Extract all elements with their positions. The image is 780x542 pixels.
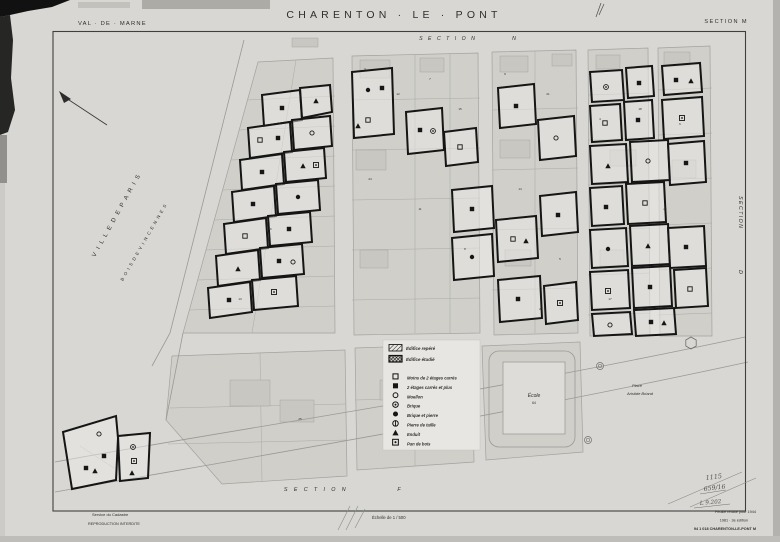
scan-smudge-top-2 — [78, 2, 130, 8]
symbol-square-filled — [556, 213, 560, 217]
symbol-square-filled — [470, 207, 474, 211]
surveyed-parcel — [634, 308, 676, 336]
parcel-number: 25 — [298, 417, 302, 421]
symbol-circle-filled — [470, 255, 474, 259]
building-shade — [360, 250, 388, 268]
symbol-square-dot-center — [273, 291, 275, 293]
symbol-circle-dot-center — [395, 404, 397, 406]
map-sheet: S E C T I O NNS E C T I O NDS E C T I O … — [0, 0, 780, 542]
surveyed-parcel — [662, 97, 704, 139]
surveyed-parcel — [496, 216, 538, 262]
legend: Édifice repéré Édifice étudié Moins de 2… — [383, 340, 480, 450]
symbol-square-filled — [516, 297, 520, 301]
place-label: Place — [632, 383, 643, 388]
scanned-cadastral-map-photo: S E C T I O NNS E C T I O NDS E C T I O … — [0, 0, 780, 542]
section-f-label: S E C T I O N — [284, 487, 348, 493]
symbol-square-filled — [102, 454, 106, 458]
ecole-label: École — [528, 392, 541, 399]
parcel-number: 14 — [518, 187, 522, 191]
surveyed-parcel — [406, 108, 444, 154]
symbol-square-filled — [674, 78, 678, 82]
symbol-square-filled — [418, 128, 422, 132]
surveyed-parcel — [590, 270, 630, 310]
legend-item-label: Enduit — [407, 432, 421, 437]
parcel-number: 21 — [546, 92, 550, 96]
building-shade — [500, 140, 530, 158]
legend-icon-cf — [393, 411, 398, 416]
symbol-square-dot-center — [681, 117, 683, 119]
legend-item-label: Pierre de taille — [407, 423, 436, 428]
legend-swatch-label: Édifice étudié — [406, 357, 435, 362]
place-name-label: Aristide Briand — [626, 391, 654, 396]
parcel-number: 15 — [458, 107, 462, 111]
surveyed-parcel — [538, 116, 576, 160]
symbol-square-filled — [276, 136, 280, 140]
symbol-square-filled — [277, 259, 281, 263]
surveyed-parcel — [284, 148, 326, 182]
building-shade — [356, 150, 386, 170]
surveyed-parcel — [118, 433, 150, 481]
scale-label: Échelle de 1 / 500 — [372, 515, 406, 520]
building-shade — [552, 54, 572, 66]
symbol-square-filled — [287, 227, 291, 231]
legend-item-label: Brique — [407, 404, 421, 409]
symbol-circle-filled — [393, 411, 398, 416]
photo-edge-left — [0, 183, 5, 542]
symbol-square-filled — [251, 202, 255, 206]
symbol-square-dot-center — [315, 164, 317, 166]
sheet-note-line2: 1981 · 3e édition — [720, 519, 748, 523]
symbol-square-dot-center — [133, 460, 135, 462]
photo-edge-right — [773, 0, 780, 542]
parcel-number: 12 — [396, 92, 400, 96]
surveyed-parcel — [626, 182, 666, 224]
symbol-square-filled — [684, 245, 688, 249]
surveyed-parcel — [630, 224, 670, 266]
cadastre-credit: Service du Cadastre — [92, 512, 129, 517]
section-n-label: S E C T I O N — [419, 36, 477, 42]
parcel-number: 24 — [368, 177, 372, 181]
surveyed-parcel — [260, 244, 304, 278]
page-title: CHARENTON · LE · PONT — [286, 9, 501, 21]
legend-swatch-repere — [389, 345, 402, 352]
symbol-square-filled — [227, 298, 231, 302]
symbol-square-filled — [84, 466, 88, 470]
symbol-circle-filled — [606, 247, 610, 251]
reproduction-notice: REPRODUCTION INTERDITE — [88, 522, 140, 526]
symbol-square-filled — [380, 86, 384, 90]
symbol-square-dot-center — [394, 441, 396, 443]
symbol-square-filled — [280, 106, 284, 110]
symbol-square-filled — [637, 81, 641, 85]
sheet-reference: 94 1 018 CHARENTON-LE-PONT M — [694, 527, 756, 531]
section-d-letter: D — [737, 270, 743, 274]
surveyed-parcel — [674, 268, 708, 308]
sheet-note-line1: Feuille refaite pour 1944 — [715, 510, 756, 514]
building-shade — [596, 55, 620, 69]
building-shade — [500, 56, 528, 72]
symbol-square-filled — [648, 285, 652, 289]
department-label: VAL · DE · MARNE — [78, 21, 147, 27]
symbol-circle-filled — [296, 195, 300, 199]
parcel-number: 17 — [608, 297, 612, 301]
ecole-number: 64 — [532, 401, 536, 405]
building-shade — [230, 380, 270, 406]
symbol-circle-dot-center — [605, 86, 607, 88]
surveyed-parcel — [544, 282, 578, 324]
surveyed-parcel — [590, 104, 622, 142]
section-d-label: S E C T I O N — [737, 196, 743, 228]
scan-smudge-left — [0, 135, 7, 183]
parcel-number: 11 — [418, 207, 421, 211]
legend-item-label: Moellon — [407, 394, 423, 399]
symbol-square-filled — [260, 170, 264, 174]
surveyed-parcel — [252, 276, 298, 310]
legend-item-label: Moins de 2 étages carrés — [407, 376, 457, 381]
symbol-square-filled — [684, 161, 688, 165]
symbol-square-filled — [649, 320, 653, 324]
symbol-square-filled — [514, 104, 518, 108]
section-m-label: SECTION M — [704, 19, 748, 25]
symbol-circle-filled — [366, 88, 370, 92]
surveyed-parcel — [590, 70, 624, 102]
parcel-number: 16 — [268, 227, 272, 231]
legend-swatch-etudie — [389, 356, 402, 363]
building-shade — [292, 38, 318, 47]
symbol-circle-dot-center — [132, 446, 134, 448]
legend-item-label: Pan de bois — [407, 441, 431, 446]
symbol-square-filled — [636, 118, 640, 122]
surveyed-parcel — [444, 128, 478, 166]
photo-edge-bottom — [0, 536, 780, 542]
surveyed-parcel — [292, 116, 332, 150]
symbol-square-filled — [393, 383, 398, 388]
legend-icon-sq — [393, 383, 398, 388]
parcel-number: 22 — [663, 207, 667, 211]
scan-smudge-top — [142, 0, 270, 9]
symbol-square-dot-center — [559, 302, 561, 304]
surveyed-parcel — [590, 144, 628, 184]
symbol-square-filled — [604, 205, 608, 209]
parcel-number: 13 — [238, 297, 242, 301]
section-n-letter: N — [512, 36, 516, 42]
parcel-number: 18 — [638, 107, 642, 111]
symbol-circle-dot-center — [432, 130, 434, 132]
symbol-square-dot-center — [607, 290, 609, 292]
legend-swatch-label: Édifice repéré — [406, 346, 436, 351]
surveyed-parcel — [662, 63, 702, 95]
legend-item-label: 2 étages carrés et plus — [406, 385, 453, 390]
building-shade — [420, 58, 444, 72]
legend-item-label: Brique et pierre — [407, 413, 439, 418]
parcel-number: 10 — [298, 147, 302, 151]
